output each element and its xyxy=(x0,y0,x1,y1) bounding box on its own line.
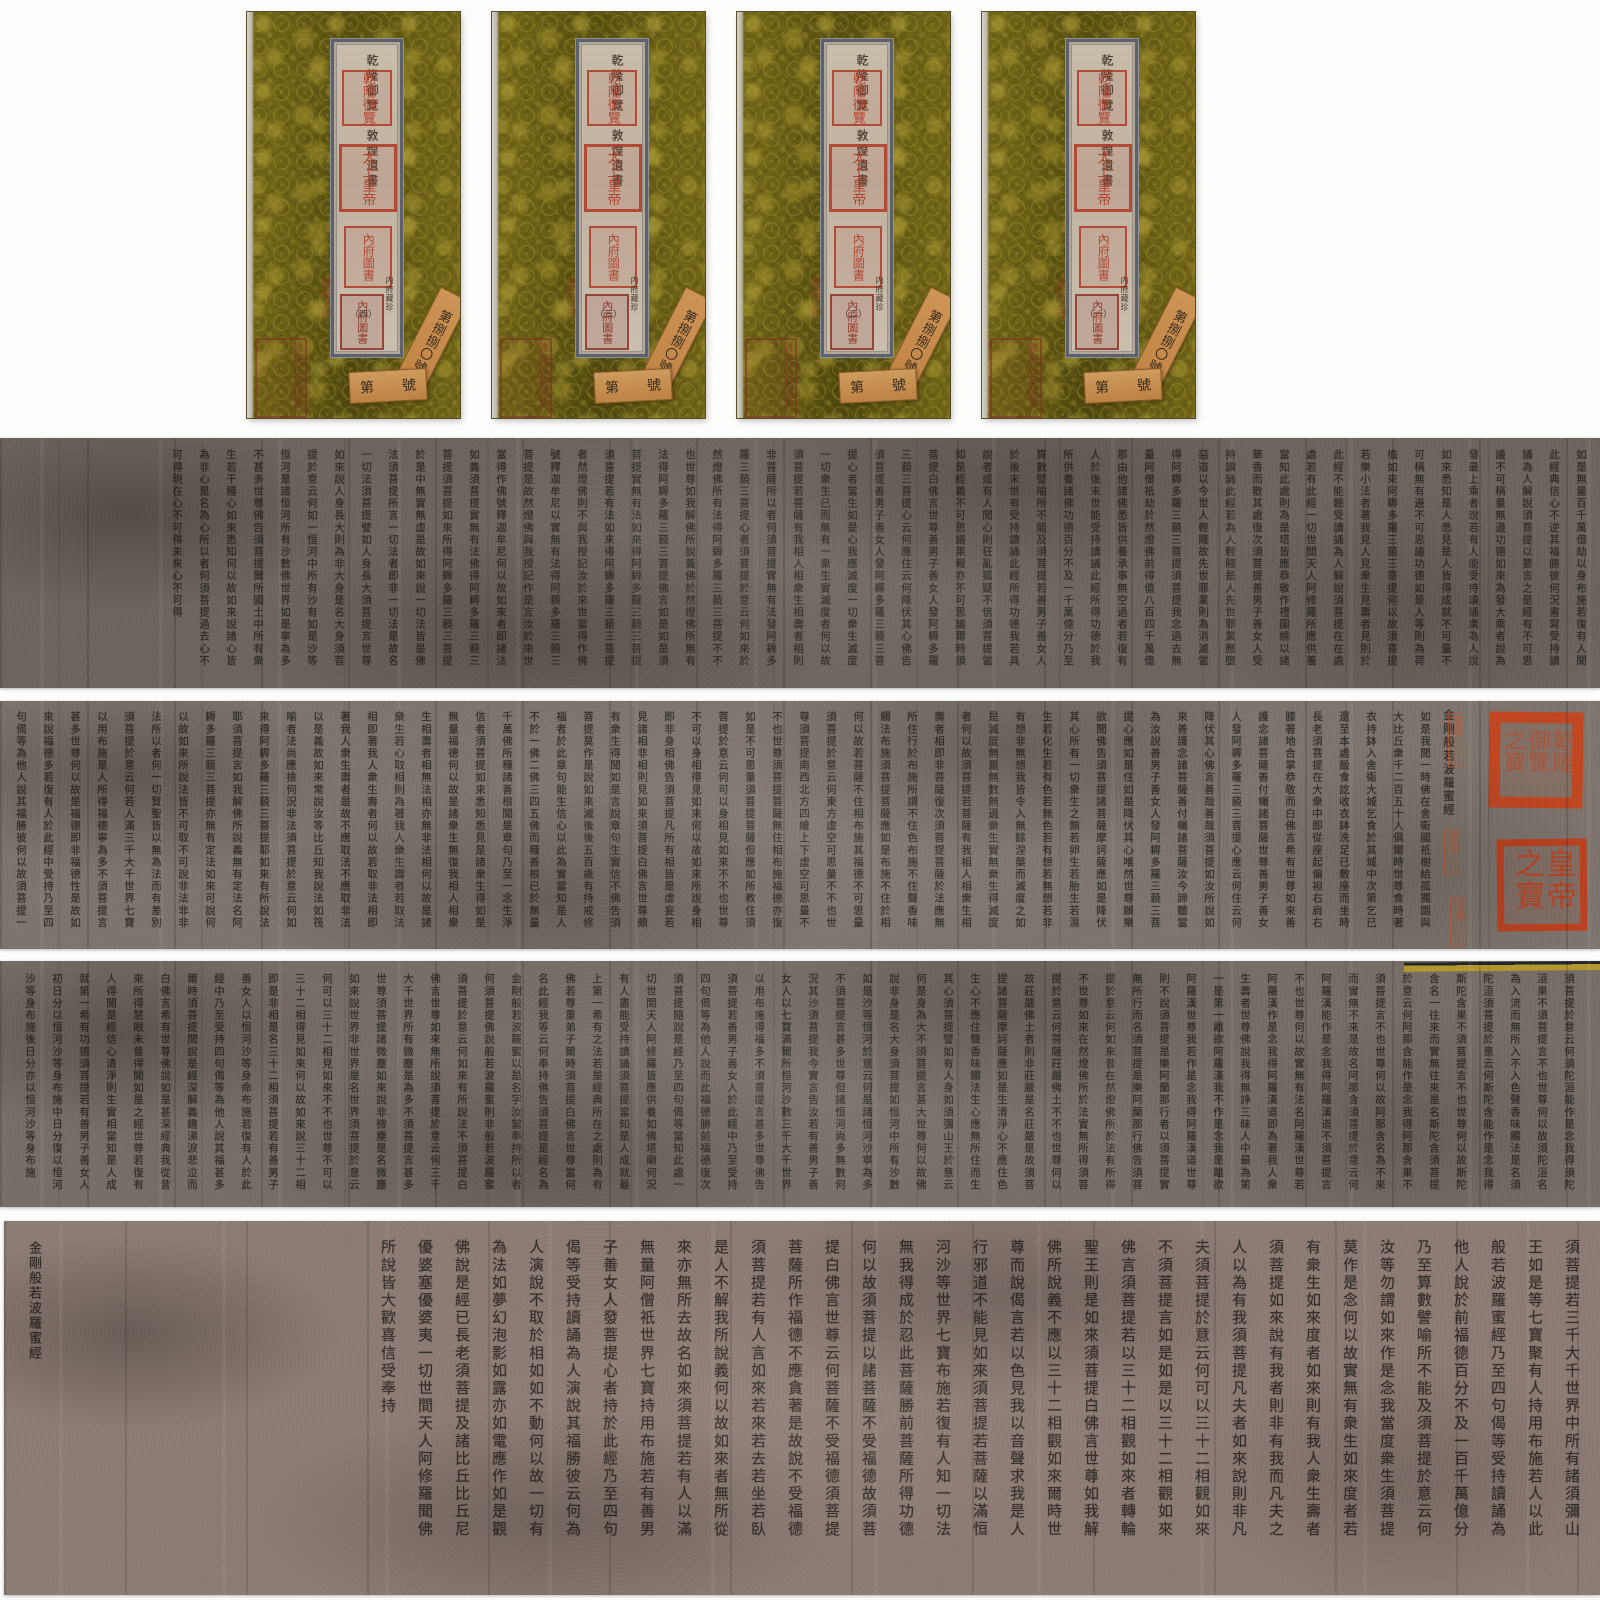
horizontal-number-tag: 第 號 xyxy=(838,368,918,404)
faded-stamp-icon: 藏經之印 xyxy=(544,278,574,338)
cover-spine xyxy=(982,12,989,418)
emperor-seal-icon: 太上皇帝 xyxy=(829,144,887,212)
cover-spine xyxy=(492,12,499,418)
collector-mini-seal-icon: 寶笈 xyxy=(1444,829,1460,875)
emperor-seal-icon: 太上皇帝 xyxy=(1074,144,1132,212)
scroll-strip-1: 如是無量百千萬億劫以身布施若復有人聞此經典信心不逆其福勝彼何況書寫受持讀誦為人解… xyxy=(0,438,1600,688)
faded-stamp-icon: 藏經之印 xyxy=(1034,278,1064,338)
cover-title-label: 乾隆御覽 敦煌遺書 乾隆御覽 太上皇帝 內府圖書 內府圖書 内府藏珍 （一） xyxy=(1066,39,1138,357)
horizontal-number-tag: 第 號 xyxy=(1083,368,1163,404)
cover-spine xyxy=(737,12,744,418)
faded-stamp-icon: 藏經之印 xyxy=(299,278,329,338)
collection-seal-icon: 內府圖書 xyxy=(1075,294,1119,350)
sutra-text-columns: 如是無量百千萬億劫以身布施若復有人聞此經典信心不逆其福勝彼何況書寫受持讀誦為人解… xyxy=(6,449,1594,677)
scroll-strip-4-ending: 須菩提若三千大千世界中所有諸須彌山王如是等七寶聚有人持用布施若人以此般若波羅蜜經… xyxy=(4,1221,1600,1595)
cover-title-label: 乾隆御覽 敦煌遺書 乾隆御覽 太上皇帝 內府圖書 內府圖書 内府藏珍 （三） xyxy=(576,39,648,357)
tag-prefix: 第 xyxy=(605,377,620,398)
qianlong-seal-icon: 乾隆御覽 xyxy=(587,70,637,126)
manuscript-scan: 乾隆御覽 敦煌遺書 乾隆御覽 太上皇帝 內府圖書 內府圖書 内府藏珍 （四） 藏… xyxy=(0,0,1600,1600)
horizontal-number-tag: 第 號 xyxy=(348,368,428,404)
collector-mini-seal-icon: 金匱 xyxy=(1448,713,1464,767)
emperor-seal-icon: 太上皇帝 xyxy=(584,144,642,212)
cover-spine xyxy=(247,12,254,418)
end-title-column: 金剛般若波羅蜜經 xyxy=(24,1241,43,1371)
corner-collection-seal-icon: 敦煌石室祕笈 xyxy=(745,338,797,418)
cover-title-label: 乾隆御覽 敦煌遺書 乾隆御覽 太上皇帝 內府圖書 內府圖書 内府藏珍 （二） xyxy=(821,39,893,357)
imperial-seal-lower-icon: 皇帝之寶 xyxy=(1497,839,1588,932)
horizontal-number-tag: 第 號 xyxy=(593,368,673,404)
scroll-strip-3: 須菩提於意云何須陀洹能作是念我得須陀洹果不須菩提言不也世尊何以故須陀洹名為入流而… xyxy=(0,961,1600,1207)
brocade-cover-4: 乾隆御覽 敦煌遺書 乾隆御覽 太上皇帝 內府圖書 內府圖書 内府藏珍 （一） 藏… xyxy=(982,12,1195,418)
label-volume-number: （一） xyxy=(1085,307,1112,320)
label-volume-number: （三） xyxy=(595,307,622,320)
brocade-cover-1: 乾隆御覽 敦煌遺書 乾隆御覽 太上皇帝 內府圖書 內府圖書 内府藏珍 （四） 藏… xyxy=(247,12,460,418)
label-librarian-note: 内府藏珍 xyxy=(874,276,885,340)
tag-prefix: 第 xyxy=(850,377,865,398)
tag-prefix: 第 xyxy=(360,377,375,398)
corner-collection-seal-icon: 敦煌石室祕笈 xyxy=(500,338,552,418)
faded-stamp-icon: 藏經之印 xyxy=(789,278,819,338)
brocade-cover-2: 乾隆御覽 敦煌遺書 乾隆御覽 太上皇帝 內府圖書 內府圖書 内府藏珍 （三） 藏… xyxy=(492,12,705,418)
cover-title-label: 乾隆御覽 敦煌遺書 乾隆御覽 太上皇帝 內府圖書 內府圖書 内府藏珍 （四） xyxy=(331,39,403,357)
scroll-strip-2-opening: 金剛般若波羅蜜經 如是我聞一時佛在舍衛國祇樹給孤獨園與大比丘衆千二百五十人俱爾時… xyxy=(0,701,1600,949)
label-volume-number: （四） xyxy=(350,307,377,320)
tag-prefix: 第 xyxy=(1095,377,1110,398)
corner-collection-seal-icon: 敦煌石室祕笈 xyxy=(255,338,307,418)
tag-suffix: 號 xyxy=(646,375,661,396)
collection-seal-icon: 內府圖書 xyxy=(830,294,874,350)
imperial-seal-upper-icon: 乾隆御覽之寶 xyxy=(1488,711,1583,808)
label-volume-number: （二） xyxy=(840,307,867,320)
label-librarian-note: 内府藏珍 xyxy=(1119,276,1130,340)
collection-seal-icon: 內府圖書 xyxy=(585,294,629,350)
sutra-text-columns: 須菩提若三千大千世界中所有諸須彌山王如是等七寶聚有人持用布施若人以此般若波羅蜜經… xyxy=(110,1239,1590,1547)
label-librarian-note: 内府藏珍 xyxy=(384,276,395,340)
tag-suffix: 號 xyxy=(1136,375,1151,396)
brocade-cover-3: 乾隆御覽 敦煌遺書 乾隆御覽 太上皇帝 內府圖書 內府圖書 内府藏珍 （二） 藏… xyxy=(737,12,950,418)
qianlong-seal-icon: 乾隆御覽 xyxy=(1077,70,1127,126)
corner-collection-seal-icon: 敦煌石室祕笈 xyxy=(990,338,1042,418)
sutra-text-columns: 如是我聞一時佛在舍衛國祇樹給孤獨園與大比丘衆千二百五十人俱爾時世尊食時著衣持鉢入… xyxy=(8,711,1438,939)
collection-seal-icon: 內府圖書 xyxy=(340,294,384,350)
sutra-text-columns: 須菩提於意云何須陀洹能作是念我得須陀洹果不須菩提言不也世尊何以故須陀洹名為入流而… xyxy=(7,973,1582,1197)
label-librarian-note: 内府藏珍 xyxy=(629,276,640,340)
emperor-seal-icon: 太上皇帝 xyxy=(339,144,397,212)
brocade-edge-binding xyxy=(1404,961,1600,972)
tag-suffix: 號 xyxy=(891,375,906,396)
qianlong-seal-icon: 乾隆御覽 xyxy=(342,70,392,126)
qianlong-seal-icon: 乾隆御覽 xyxy=(832,70,882,126)
tag-suffix: 號 xyxy=(401,375,416,396)
collector-mini-seal-icon: 珍藏 xyxy=(1450,897,1466,947)
